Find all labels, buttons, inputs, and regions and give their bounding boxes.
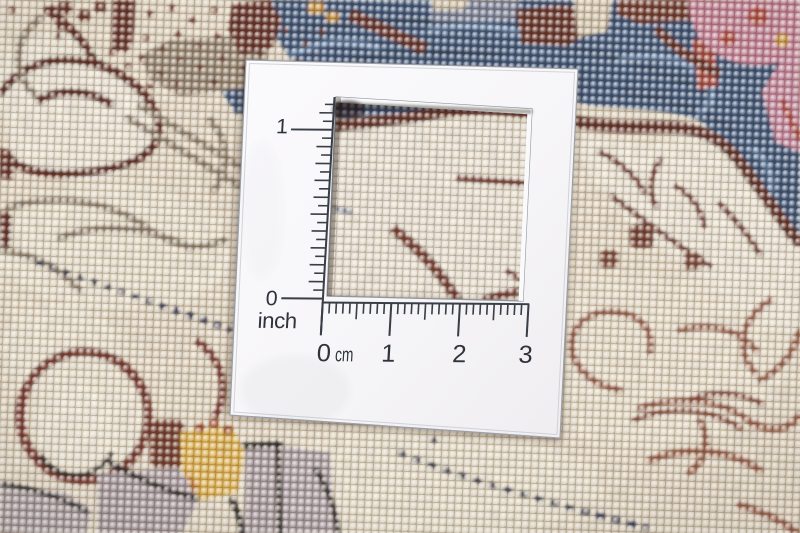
svg-text:1: 1	[275, 116, 288, 139]
svg-text:2: 2	[452, 340, 468, 368]
svg-text:0: 0	[316, 339, 332, 367]
svg-text:inch: inch	[257, 308, 298, 333]
svg-text:3: 3	[518, 341, 534, 369]
svg-text:0: 0	[265, 287, 278, 310]
svg-text:cm: cm	[334, 344, 354, 366]
svg-text:1: 1	[381, 340, 397, 368]
